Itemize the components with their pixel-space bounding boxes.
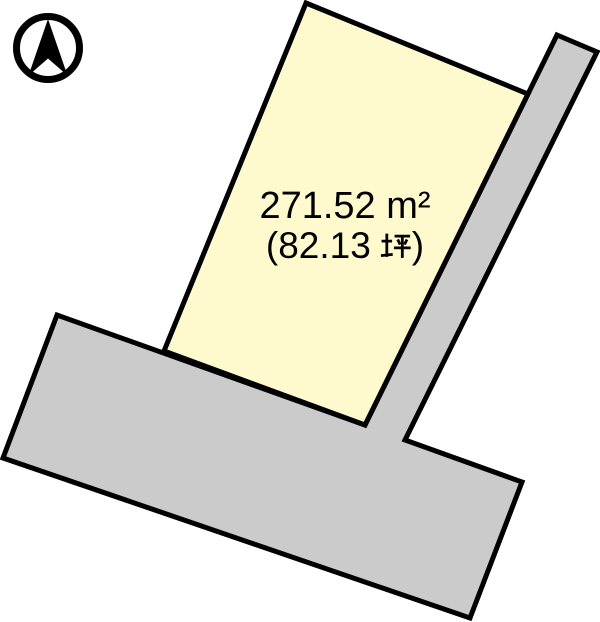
tsubo-kanji-icon bbox=[380, 229, 411, 260]
area-label: 271.52 m² (82.13) bbox=[215, 186, 475, 266]
site-plan-svg bbox=[0, 0, 600, 622]
area-sqm-text: 271.52 m² bbox=[215, 186, 475, 226]
north-compass-icon bbox=[17, 17, 80, 80]
area-tsubo-text: (82.13) bbox=[215, 226, 475, 266]
tsubo-value: 82.13 bbox=[278, 225, 371, 266]
tsubo-open-paren: ( bbox=[266, 225, 278, 266]
site-plan: 271.52 m² (82.13) bbox=[0, 0, 600, 622]
tsubo-close-paren: ) bbox=[412, 225, 424, 266]
